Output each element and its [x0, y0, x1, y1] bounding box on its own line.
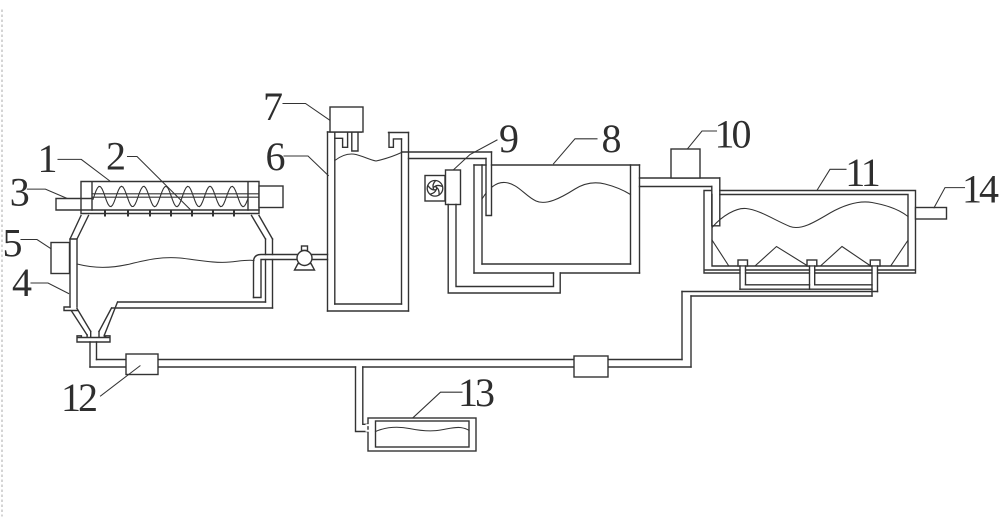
svg-text:8: 8	[602, 116, 622, 161]
svg-text:14: 14	[962, 167, 999, 212]
svg-text:6: 6	[266, 134, 286, 179]
svg-text:3: 3	[10, 170, 30, 215]
svg-text:11: 11	[845, 150, 879, 195]
svg-text:7: 7	[263, 84, 283, 129]
svg-text:2: 2	[106, 134, 126, 179]
svg-text:10: 10	[715, 112, 751, 157]
svg-text:13: 13	[458, 370, 494, 415]
svg-text:5: 5	[3, 221, 23, 266]
svg-text:12: 12	[61, 375, 96, 420]
svg-text:4: 4	[12, 260, 32, 305]
svg-text:1: 1	[38, 136, 58, 181]
svg-text:9: 9	[499, 116, 519, 161]
